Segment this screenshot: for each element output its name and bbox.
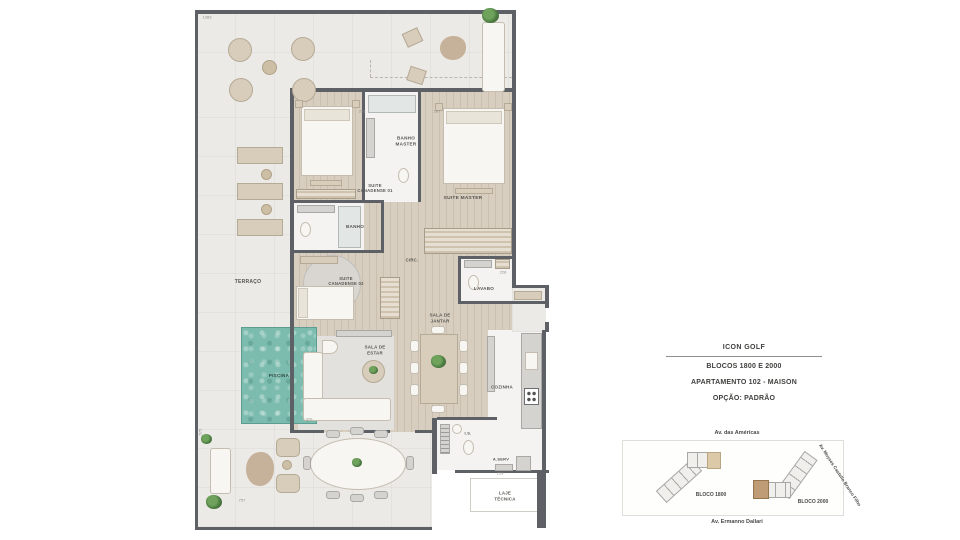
title-divider — [666, 356, 822, 357]
dimension-text: 287 — [434, 109, 441, 114]
bloco-1800-label: BLOCO 1800 — [696, 492, 727, 498]
dimension-text: 228 — [500, 270, 507, 275]
blocks-line: BLOCOS 1800 E 2000 — [660, 363, 828, 370]
option-line: OPÇÃO: PADRÃO — [660, 395, 828, 402]
room-label-sala-de-jantar: SALA DE JANTAR — [430, 313, 451, 324]
bloco-2000-label: BLOCO 2000 — [798, 499, 829, 505]
room-label-circ: CIRC. — [406, 257, 419, 262]
floorplan-sheet: TERRAÇOBANHO MASTERSUITE CANADENSE 01SUI… — [0, 0, 960, 540]
room-label-lavabo: LAVABO — [474, 286, 494, 292]
unit-line: APARTAMENTO 102 - MAISON — [660, 379, 828, 386]
highlighted-unit-1800 — [707, 452, 721, 469]
room-label-suite-canadense-02: SUITE CANADENSE 02 — [328, 276, 363, 287]
room-label-banho-master: BANHO MASTER — [396, 135, 417, 146]
title-block: ICON GOLF BLOCOS 1800 E 2000 APARTAMENTO… — [660, 344, 828, 411]
site-plan: Av. das Américas BLOCO 1800 BLOCO 2000 A… — [615, 425, 865, 535]
dimension-text: 757 — [239, 498, 246, 503]
room-label-is: I.S. — [464, 431, 471, 436]
dimension-text: 293 — [359, 109, 366, 114]
dimension-text: 1383 — [203, 15, 212, 20]
street-label-top: Av. das Américas — [714, 430, 759, 436]
room-label-cozinha: COZINHA — [491, 384, 513, 390]
room-label-a-serv: A.SERV — [493, 457, 509, 462]
dimension-text: 370 — [306, 417, 313, 422]
room-label-sala-de-estar: SALA DE ESTAR — [365, 345, 386, 356]
street-label-bottom: Av. Ermanno Dallari — [711, 519, 763, 525]
room-label-laje-tecnica: LAJE TÉCNICA — [494, 491, 515, 502]
dimension-text: 219 — [497, 471, 504, 476]
room-label-suite-master: SUITE MASTER — [444, 196, 483, 202]
room-label-suite-canadense-01: SUITE CANADENSE 01 — [357, 183, 392, 194]
room-label-piscina: PISCINA — [269, 373, 289, 379]
project-name: ICON GOLF — [660, 344, 828, 351]
room-label-banho: BANHO — [346, 224, 364, 230]
room-label-terraco: TERRAÇO — [235, 279, 261, 285]
dimension-text: 575 — [198, 429, 203, 436]
highlighted-unit-2000 — [753, 480, 769, 499]
